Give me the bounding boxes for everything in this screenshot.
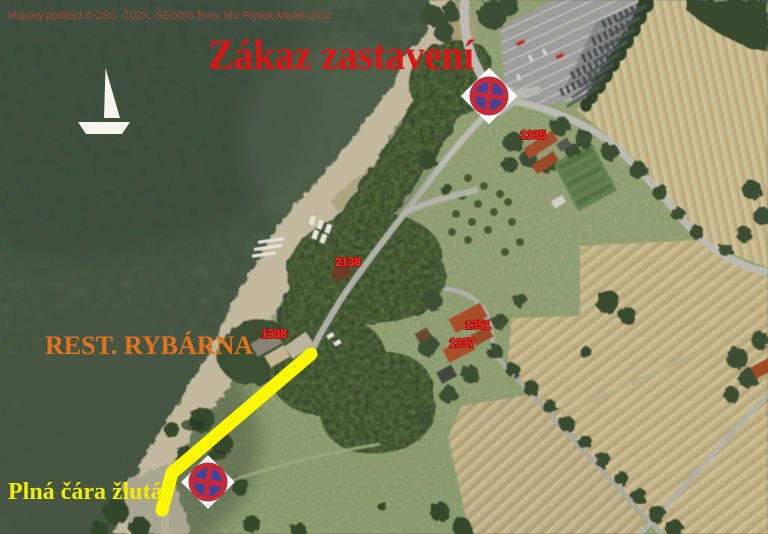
svg-text:Plná čára žlutá: Plná čára žlutá	[8, 479, 163, 505]
svg-text:1351: 1351	[465, 320, 491, 332]
svg-text:REST. RYBÁRNA: REST. RYBÁRNA	[45, 331, 253, 360]
svg-text:1338: 1338	[261, 329, 287, 341]
svg-text:Mapový podklad © ČSÚ, ČÚZK, GE: Mapový podklad © ČSÚ, ČÚZK, GEODIS Brno,…	[8, 9, 332, 22]
svg-text:2138: 2138	[335, 257, 361, 269]
svg-text:Zákaz zastavení: Zákaz zastavení	[208, 33, 475, 79]
svg-text:1335: 1335	[520, 130, 546, 142]
svg-text:1337: 1337	[449, 338, 475, 350]
